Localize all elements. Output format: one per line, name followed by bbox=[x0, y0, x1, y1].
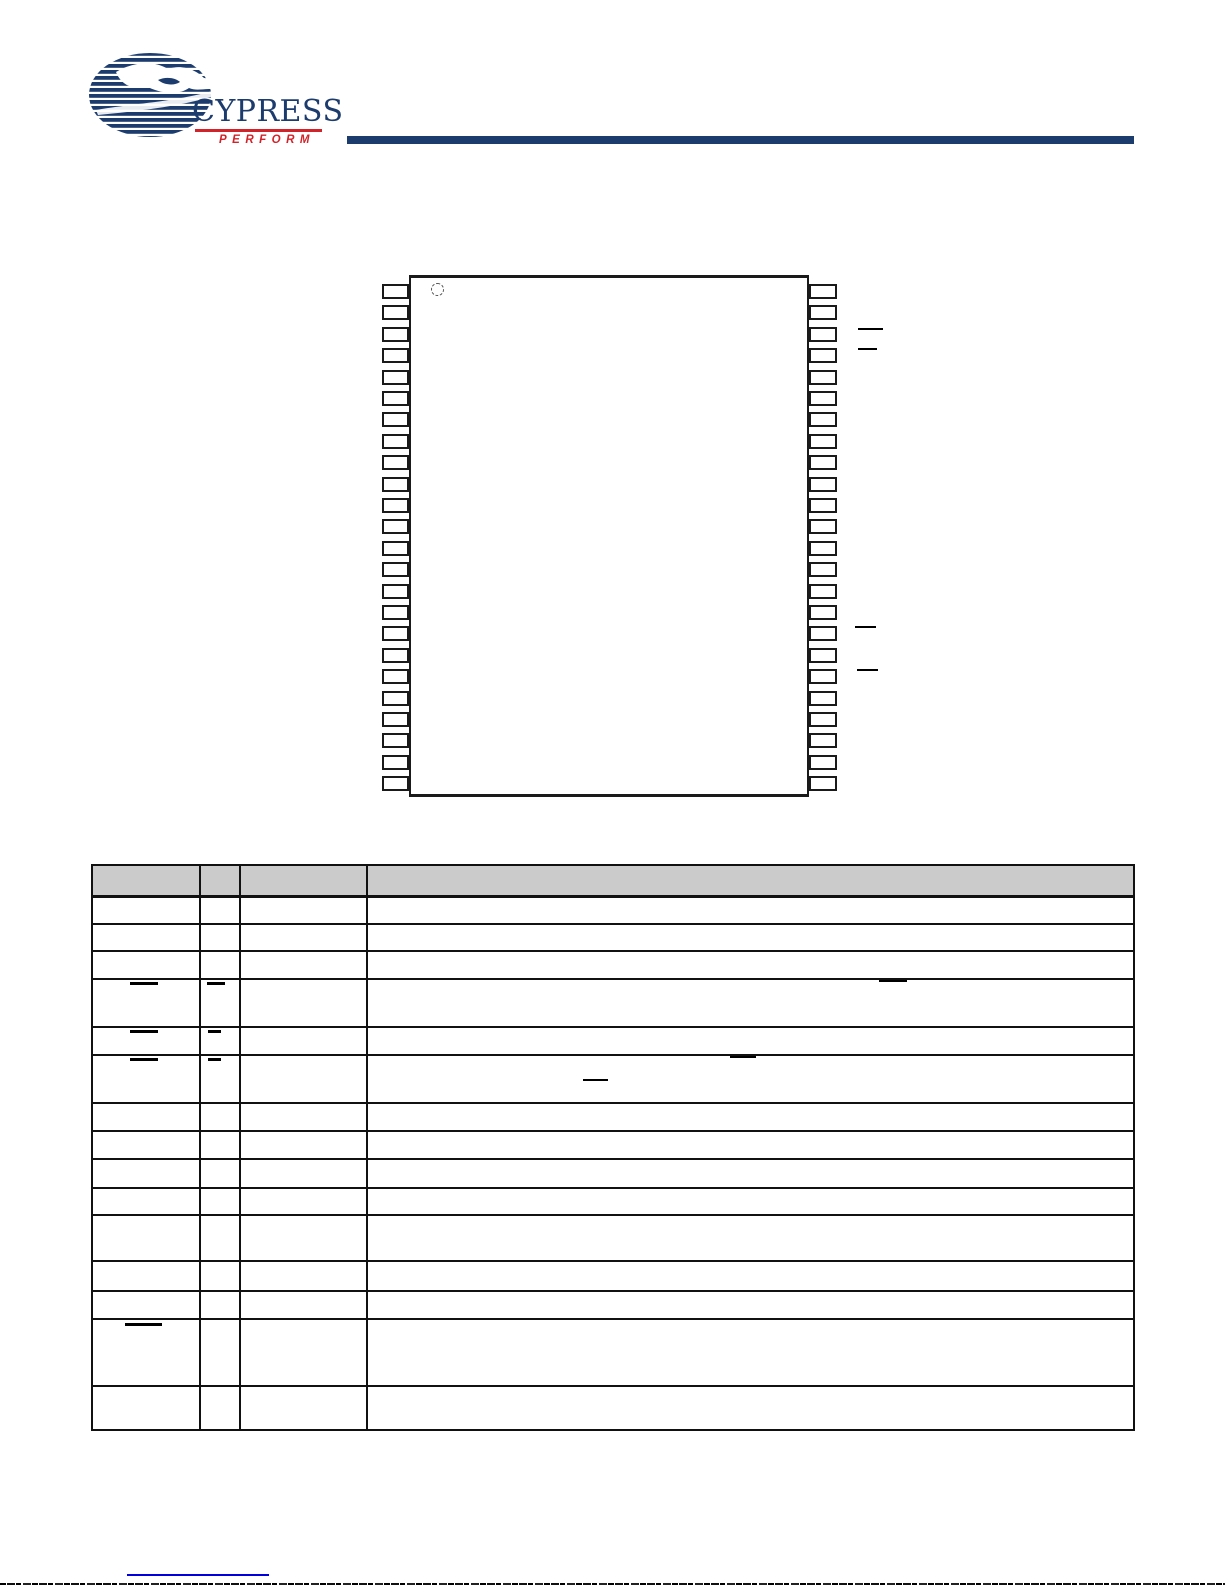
table-overbar-2 bbox=[207, 982, 225, 985]
table-overbar-8 bbox=[730, 1056, 756, 1058]
row-separator-2 bbox=[93, 950, 1133, 952]
pin-right-5 bbox=[809, 370, 837, 385]
table-header-row bbox=[93, 866, 1133, 895]
pin-right-2 bbox=[809, 305, 837, 320]
pin-right-9 bbox=[809, 455, 837, 470]
pin-right-17 bbox=[809, 626, 837, 641]
row-separator-13 bbox=[93, 1318, 1133, 1320]
row-separator-3 bbox=[93, 978, 1133, 980]
pin-right-3 bbox=[809, 327, 837, 342]
pin-left-14 bbox=[382, 562, 409, 577]
pin-left-3 bbox=[382, 327, 409, 342]
pin-left-22 bbox=[382, 733, 409, 748]
pin-left-6 bbox=[382, 391, 409, 406]
pin-right-14 bbox=[809, 562, 837, 577]
pin-right-21 bbox=[809, 712, 837, 727]
pin-right-11 bbox=[809, 498, 837, 513]
pin-left-23 bbox=[382, 755, 409, 770]
pin-left-18 bbox=[382, 648, 409, 663]
pin-left-12 bbox=[382, 519, 409, 534]
pin-right-4 bbox=[809, 348, 837, 363]
pin-left-19 bbox=[382, 669, 409, 684]
pin1-indicator-circle bbox=[431, 283, 444, 296]
pin-right-12 bbox=[809, 519, 837, 534]
pin-description-table bbox=[91, 864, 1135, 1431]
pin-left-4 bbox=[382, 348, 409, 363]
table-overbar-4 bbox=[130, 1030, 158, 1033]
datasheet-page: CYPRESS PERFORM bbox=[0, 0, 1225, 1585]
table-overbar-10 bbox=[125, 1323, 162, 1326]
pin-left-8 bbox=[382, 434, 409, 449]
table-overbar-7 bbox=[208, 1058, 221, 1061]
pin-left-20 bbox=[382, 691, 409, 706]
pin-left-1 bbox=[382, 284, 409, 299]
pin-left-2 bbox=[382, 305, 409, 320]
pin-right-7 bbox=[809, 412, 837, 427]
pin-left-11 bbox=[382, 498, 409, 513]
row-separator-1 bbox=[93, 923, 1133, 925]
row-separator-9 bbox=[93, 1187, 1133, 1189]
pin-left-13 bbox=[382, 541, 409, 556]
row-separator-6 bbox=[93, 1102, 1133, 1104]
row-separator-11 bbox=[93, 1260, 1133, 1262]
header-bottom-border bbox=[93, 895, 1133, 898]
pin-right-24 bbox=[809, 776, 837, 791]
pin-right-23 bbox=[809, 755, 837, 770]
pin-left-10 bbox=[382, 477, 409, 492]
pin-right-16 bbox=[809, 605, 837, 620]
pin-left-7 bbox=[382, 412, 409, 427]
row-separator-8 bbox=[93, 1158, 1133, 1160]
pin-left-9 bbox=[382, 455, 409, 470]
row-separator-12 bbox=[93, 1290, 1133, 1292]
pin-left-5 bbox=[382, 370, 409, 385]
pin-right-22 bbox=[809, 733, 837, 748]
pin-right-18 bbox=[809, 648, 837, 663]
logo-tagline-text: PERFORM bbox=[219, 134, 329, 148]
row-separator-5 bbox=[93, 1054, 1133, 1056]
pin-right-8 bbox=[809, 434, 837, 449]
hyperlink-underline[interactable] bbox=[127, 1574, 269, 1576]
signal-overbar-1 bbox=[858, 328, 883, 330]
pin-left-21 bbox=[382, 712, 409, 727]
ic-package-outline bbox=[409, 275, 809, 797]
table-overbar-9 bbox=[583, 1079, 608, 1081]
signal-overbar-2 bbox=[858, 348, 877, 350]
header-rule bbox=[347, 136, 1134, 144]
pin-left-15 bbox=[382, 584, 409, 599]
row-separator-4 bbox=[93, 1026, 1133, 1028]
signal-overbar-4 bbox=[857, 669, 878, 671]
pin-right-15 bbox=[809, 584, 837, 599]
table-overbar-3 bbox=[879, 980, 907, 982]
pin-right-6 bbox=[809, 391, 837, 406]
row-separator-14 bbox=[93, 1385, 1133, 1387]
pin-right-1 bbox=[809, 284, 837, 299]
table-overbar-5 bbox=[208, 1030, 221, 1033]
logo-red-underline bbox=[195, 129, 322, 132]
pin-right-10 bbox=[809, 477, 837, 492]
pin-left-17 bbox=[382, 626, 409, 641]
row-separator-10 bbox=[93, 1214, 1133, 1216]
pin-right-20 bbox=[809, 691, 837, 706]
pin-right-13 bbox=[809, 541, 837, 556]
pin-left-16 bbox=[382, 605, 409, 620]
table-overbar-6 bbox=[130, 1058, 158, 1061]
table-overbar-1 bbox=[130, 982, 158, 985]
row-separator-7 bbox=[93, 1130, 1133, 1132]
pin-right-19 bbox=[809, 669, 837, 684]
logo-brand-text: CYPRESS bbox=[192, 96, 332, 130]
pin-left-24 bbox=[382, 776, 409, 791]
signal-overbar-3 bbox=[855, 626, 876, 628]
